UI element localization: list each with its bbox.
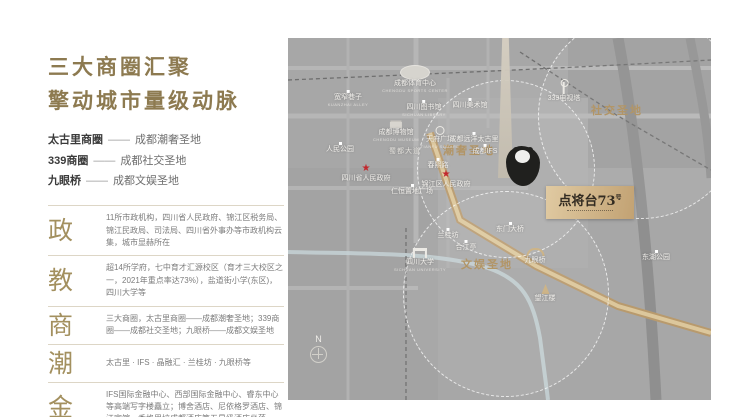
poi-label-en: SICHUAN UNIVERSITY (394, 268, 446, 272)
page-title: 三大商圈汇聚 擎动城市量级动脉 (48, 50, 284, 117)
business-circle-highlights: 太古里商圈——成都潮奢圣地 339商圈——成都社交圣地 九眼桥——成都文娱圣地 (48, 130, 284, 191)
map-poi: 成都IFS (473, 144, 498, 156)
marker-icon (411, 184, 414, 187)
poi-label: 339电视塔 (548, 95, 581, 103)
poi-label: 东门大桥 (496, 226, 524, 234)
museum-icon (390, 122, 402, 128)
star-icon: ★ (442, 170, 451, 180)
bridge-icon (526, 248, 544, 256)
compass-north-label: N (315, 334, 322, 344)
marker-icon (447, 228, 450, 231)
poi-label: 成都体育中心 (394, 80, 436, 88)
poi-label-en: CHENGDU MUSEUM (373, 138, 419, 142)
compass: N (310, 334, 327, 363)
highlight-taikooli: 太古里商圈——成都潮奢圣地 (48, 130, 284, 150)
row-char: 潮 (48, 351, 106, 376)
highlight-name: 太古里商圈 (48, 134, 103, 146)
poi-label: 四川图书馆 (406, 104, 441, 112)
zone-label: 社交圣地 (591, 102, 643, 118)
fountain-icon (435, 126, 444, 135)
map-poi: 四川大学SICHUAN UNIVERSITY (394, 248, 446, 272)
table-row-government: 政 11所市政机构，四川省人民政府、锦江区税务局、锦江民政局、司法局、四川省外事… (48, 206, 284, 256)
poi-label: 成都博物馆 (379, 129, 414, 137)
map-poi: 东湖公园 (642, 250, 670, 262)
table-row-commerce: 商 三大商圈，太古里商圈——成都潮奢圣地；339商圈——成都社交圣地；九眼桥——… (48, 307, 284, 345)
ifs-panda-illustration (502, 136, 546, 188)
highlight-desc: 成都文娱圣地 (113, 175, 179, 187)
marker-icon (437, 158, 440, 161)
row-char: 教 (48, 268, 106, 293)
title-line-2: 擎动城市量级动脉 (48, 84, 284, 118)
row-char: 商 (48, 313, 106, 338)
title-line-1: 三大商圈汇聚 (48, 50, 284, 84)
map-poi: ★锦江区人民政府 (422, 170, 471, 189)
marker-icon (655, 250, 658, 253)
row-text: 超14所学府，七中育才汇源校区（育才三大校区之一，2021年重点率达73%），盐… (106, 262, 284, 299)
marker-icon (422, 100, 425, 103)
map-poi: 339电视塔 (548, 82, 581, 103)
compass-rose-icon (310, 346, 327, 363)
highlight-339: 339商圈——成都社交圣地 (48, 151, 284, 171)
brochure-page: 三大商圈汇聚 擎动城市量级动脉 太古里商圈——成都潮奢圣地 339商圈——成都社… (0, 0, 740, 417)
poi-label-en: SICHUAN LIBRARY (402, 113, 446, 117)
poi-label: 合江亭 (456, 244, 477, 252)
highlight-desc: 成都潮奢圣地 (135, 134, 201, 146)
map-poi: 望江楼 (535, 284, 556, 303)
map-poi: 成都体育中心CHENGDU SPORTS CENTER (382, 80, 448, 93)
map-poi: 东门大桥 (496, 222, 524, 234)
poi-label: 成都IFS (473, 148, 498, 156)
row-char: 金 (48, 395, 106, 417)
poi-label: 东湖公园 (642, 254, 670, 262)
marker-icon (509, 222, 512, 225)
logo-subtitle-rule (567, 210, 613, 211)
row-text: IFS国际金融中心、西部国际金融中心、睿东中心等高端写字楼矗立；博舍酒店、尼依格… (106, 389, 284, 417)
poi-label: 春熙路 (428, 162, 449, 170)
star-icon: ★ (362, 164, 371, 174)
row-text: 三大商圈，太古里商圈——成都潮奢圣地；339商圈——成都社交圣地；九眼桥——成都… (106, 313, 284, 338)
dash: —— (93, 155, 115, 167)
marker-icon (339, 142, 342, 145)
poi-label: 宽窄巷子 (334, 94, 362, 102)
map-poi: 九眼桥 (525, 248, 546, 265)
tv-tower-icon (563, 82, 565, 94)
poi-label: 人民公园 (326, 146, 354, 154)
marker-icon (465, 240, 468, 243)
map-poi: 四川美术馆 (453, 98, 488, 110)
highlight-desc: 成都社交圣地 (120, 155, 186, 167)
left-panel: 三大商圈汇聚 擎动城市量级动脉 太古里商圈——成都潮奢圣地 339商圈——成都社… (48, 50, 284, 417)
panda-head (515, 150, 530, 163)
marker-icon (346, 90, 349, 93)
poi-label: 四川大学 (406, 259, 434, 267)
poi-label: 蜀都大道 (389, 148, 421, 156)
pagoda-icon (541, 284, 549, 294)
zone-label: 文娱圣地 (461, 256, 513, 272)
poi-label: 四川美术馆 (453, 102, 488, 110)
poi-label: 望江楼 (535, 295, 556, 303)
map-poi: 成都博物馆CHENGDU MUSEUM (373, 122, 419, 142)
marker-icon (473, 132, 476, 135)
logo-main-text: 点将台73 (558, 194, 615, 209)
marker-icon (483, 144, 486, 147)
row-text: 11所市政机构，四川省人民政府、锦江区税务局、锦江民政局、司法局、四川省外事办等… (106, 212, 284, 249)
map-poi: 四川图书馆SICHUAN LIBRARY (402, 100, 446, 117)
highlight-jiuyanqiao: 九眼桥——成都文娱圣地 (48, 171, 284, 191)
map-poi: 蜀都大道 (389, 148, 421, 156)
poi-label: 四川省人民政府 (342, 175, 391, 183)
poi-label: 锦江区人民政府 (422, 181, 471, 189)
table-row-trend: 潮 太古里 · IFS · 晶融汇 · 兰桂坊 · 九眼桥等 (48, 345, 284, 383)
dash: —— (108, 134, 130, 146)
map-poi: ★四川省人民政府 (342, 164, 391, 183)
poi-label-en: TIANFU SQUARE (421, 145, 460, 149)
map-poi: 合江亭 (456, 240, 477, 252)
row-text: 太古里 · IFS · 晶融汇 · 兰桂坊 · 九眼桥等 (106, 357, 284, 369)
logo-sup-text: 号 (616, 194, 622, 201)
city-map: 点将台73号 N 潮奢圣地社交圣地文娱圣地宽窄巷子KUANZHAI ALLEY成… (288, 38, 711, 400)
map-poi: 成都远洋太古里 (450, 132, 499, 144)
poi-label-en: KUANZHAI ALLEY (328, 103, 369, 107)
project-logo-plaque: 点将台73号 (546, 186, 634, 219)
map-poi: 宽窄巷子KUANZHAI ALLEY (328, 90, 369, 107)
sports-center-oval (400, 65, 430, 80)
highlight-name: 九眼桥 (48, 175, 81, 187)
gate-icon (413, 248, 427, 258)
map-poi: 春熙路 (428, 158, 449, 170)
map-poi: 兰桂坊 (438, 228, 459, 240)
project-logo-text: 点将台73号 (558, 195, 621, 208)
row-char: 政 (48, 218, 106, 243)
dash: —— (86, 175, 108, 187)
poi-label-en: CHENGDU SPORTS CENTER (382, 89, 448, 93)
marker-icon (469, 98, 472, 101)
table-row-finance: 金 IFS国际金融中心、西部国际金融中心、睿东中心等高端写字楼矗立；博舍酒店、尼… (48, 383, 284, 417)
poi-label: 九眼桥 (525, 257, 546, 265)
highlight-name: 339商圈 (48, 155, 88, 167)
table-row-education: 教 超14所学府，七中育才汇源校区（育才三大校区之一，2021年重点率达73%）… (48, 256, 284, 306)
amenity-table: 政 11所市政机构，四川省人民政府、锦江区税务局、锦江民政局、司法局、四川省外事… (48, 205, 284, 417)
map-poi: 人民公园 (326, 142, 354, 154)
